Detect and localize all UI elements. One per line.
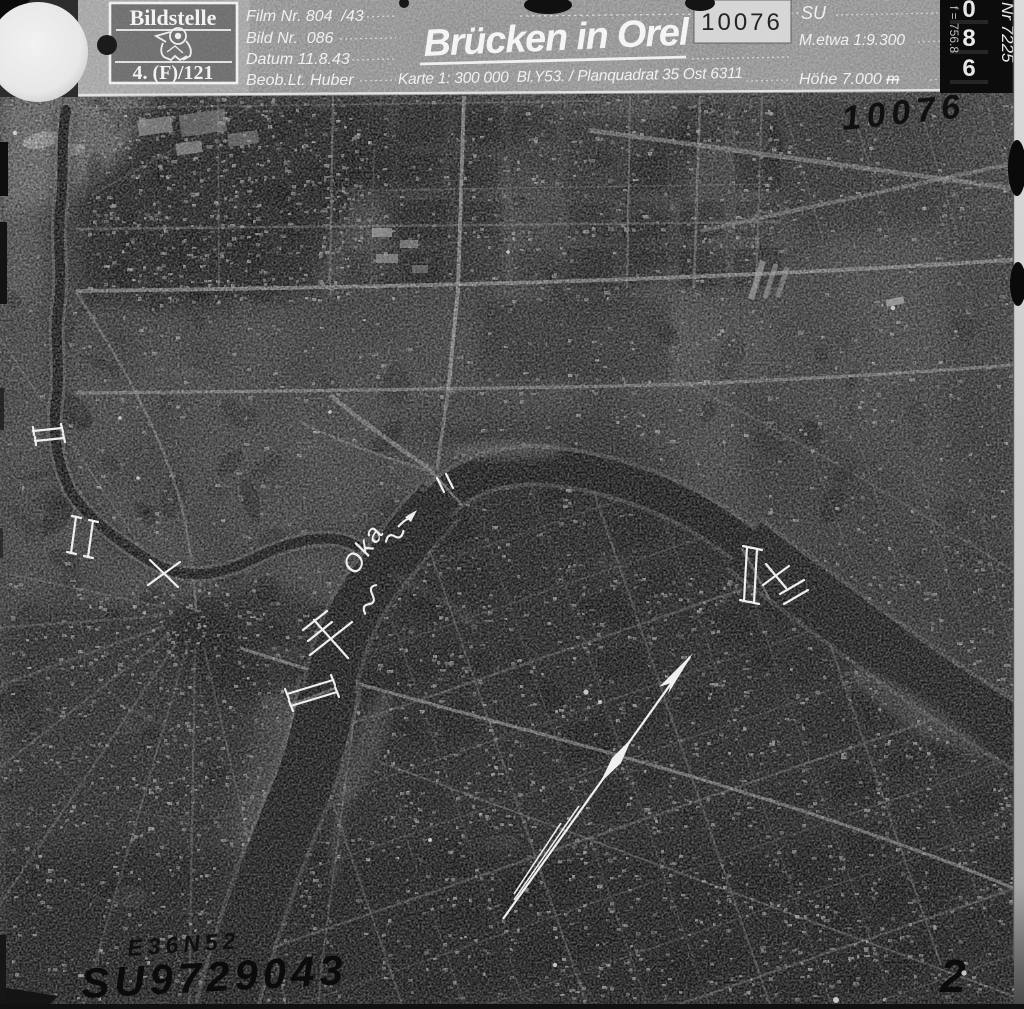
svg-text:2: 2 [939,950,966,1002]
svg-text:SU: SU [801,3,827,23]
svg-text:0: 0 [962,0,975,23]
svg-text:Bildstelle: Bildstelle [130,5,217,30]
svg-text:f = 756.8: f = 756.8 [947,6,961,53]
svg-text:M.etwa 1:9.300: M.etwa 1:9.300 [799,32,905,49]
svg-text:Bild Nr. 086: Bild Nr. 086 [246,30,334,47]
svg-text:10076: 10076 [701,9,783,36]
svg-text:8: 8 [962,25,975,52]
svg-text:Beob.Lt. Huber: Beob.Lt. Huber [246,72,354,89]
svg-text:Film Nr. 804 /43: Film Nr. 804 /43 [246,8,364,25]
svg-text:6: 6 [962,55,975,82]
svg-text:Höhe 7.000 m: Höhe 7.000 m [799,71,900,88]
svg-text:Datum 11.8.43: Datum 11.8.43 [246,51,350,68]
svg-text:4. (F)/121: 4. (F)/121 [132,62,213,84]
